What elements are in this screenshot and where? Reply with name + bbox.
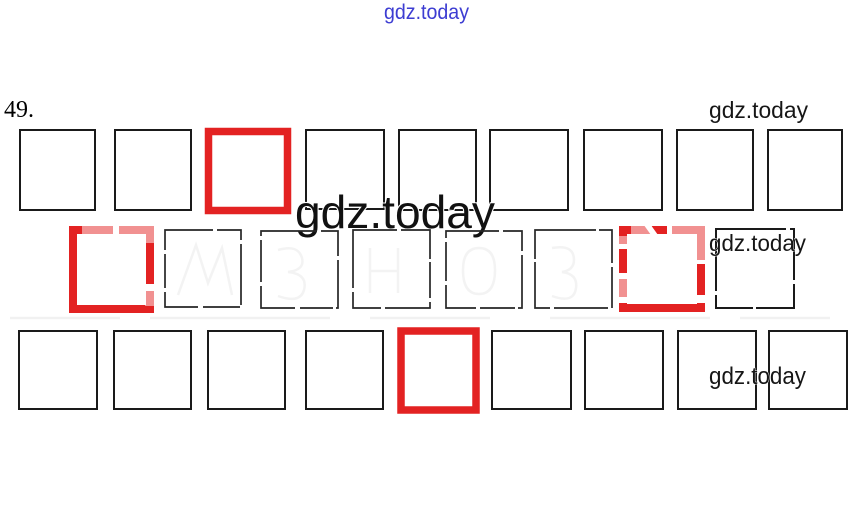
svg-text:gdz.today: gdz.today — [384, 1, 469, 24]
svg-text:gdz.today: gdz.today — [709, 230, 806, 256]
svg-text:gdz.today: gdz.today — [709, 363, 806, 390]
svg-text:gdz.today: gdz.today — [709, 97, 808, 123]
svg-text:49.: 49. — [4, 97, 34, 123]
